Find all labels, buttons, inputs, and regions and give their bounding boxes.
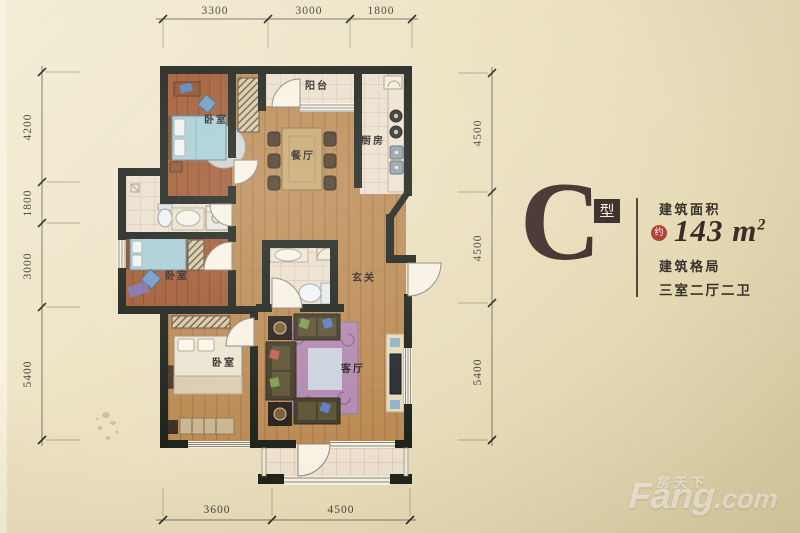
window-balcony-sill [300,103,354,112]
pillow [132,255,142,267]
dim-bottom-1: 3600 [204,504,231,516]
dim-top-1: 3300 [202,5,229,17]
media-box [390,400,400,409]
toilet [299,284,321,302]
bed-headboard [126,238,130,270]
bench [180,418,234,434]
window-left-wall [117,240,126,268]
area-unit: m [732,213,757,248]
wardrobe [188,240,204,270]
room-label-dining: 餐厅 [290,149,315,162]
layout-value: 三室二厅二卫 [659,279,752,299]
fang-watermark-logo: Fang.com [628,478,780,514]
wardrobe-cabinet [238,78,259,132]
bathroom-sink [275,249,301,261]
door-main-entry [408,263,441,296]
pillow [174,139,185,156]
nightstand [170,162,182,172]
area-superscript: 2 [757,217,766,234]
dim-left-3: 3000 [22,253,34,280]
tv [390,354,401,394]
dim-left-1: 4200 [22,114,34,141]
rug-center [308,348,342,390]
room-label-balcony-top: 阳台 [305,79,329,92]
window-living-right [404,348,412,404]
window-bedroom3-bottom [188,441,250,448]
fang-watermark-tld: .com [714,484,779,514]
side-cabinet [168,420,178,434]
sofa-cushion [298,402,316,420]
table-lamp [274,322,286,334]
wardrobe [172,316,230,328]
pillow [198,339,214,351]
room-label-kitchen: 厨房 [361,134,385,147]
table-lamp [274,408,286,420]
pillow [178,339,194,351]
pillow [174,119,185,136]
unit-type-letter: C [520,166,601,278]
kitchen-appliance [384,76,402,89]
layout-label: 建筑格局 [659,256,721,275]
toilet [158,209,172,227]
pillow [132,241,142,253]
panel-divider [636,198,638,297]
approx-badge: 约 [651,225,667,241]
dim-top-2: 3000 [296,5,323,17]
dim-right-2: 4500 [472,235,484,262]
bathroom-sink [176,210,200,226]
room-label-bedroom-top: 卧室 [204,113,228,126]
unit-type-badge: 型 [594,199,620,223]
dim-top-3: 1800 [368,5,395,17]
paper-speckle [96,412,119,440]
fang-watermark-latin: Fang [628,475,717,516]
throw-pillow [269,377,279,387]
dim-right-3: 5400 [472,359,484,386]
area-number: 143 [674,213,724,248]
room-label-bedroom-mid: 卧室 [165,269,189,282]
bed-throw [174,376,242,394]
media-box [390,338,400,347]
dim-bottom-2: 4500 [328,504,355,516]
area-value: 143 m2 [674,213,766,249]
window-living-bottom [330,441,395,448]
dim-right-1: 4500 [472,120,484,147]
bed-headboard [168,116,172,160]
dim-left-4: 5400 [22,361,34,388]
toilet-tank [321,283,331,304]
room-label-living: 客厅 [340,362,365,375]
room-label-entry: 玄关 [352,271,376,284]
room-label-bedroom-bottom: 卧室 [212,356,236,369]
throw-pillow [269,349,280,360]
dim-left-2: 1800 [22,190,34,217]
